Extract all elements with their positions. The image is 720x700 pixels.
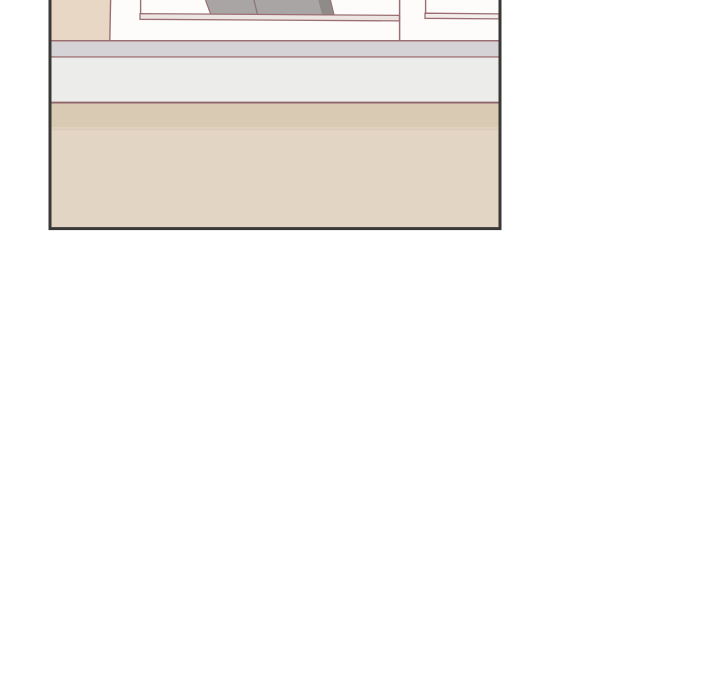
floor-lower-band (51, 131, 499, 227)
counter-gray-band (51, 42, 499, 57)
near-desk-front-strip (140, 14, 400, 21)
gray-object-panel-left (206, 0, 258, 16)
wall-column-edge-line (110, 0, 111, 41)
comic-panel (0, 0, 720, 700)
gray-object-panel-right (254, 0, 322, 16)
page-background (0, 0, 720, 700)
far-desk-front-strip (425, 13, 499, 19)
wall-column (51, 0, 111, 41)
floor-blend-band (51, 128, 499, 132)
counter-face-band (51, 58, 499, 102)
floor-upper-band (51, 104, 499, 128)
